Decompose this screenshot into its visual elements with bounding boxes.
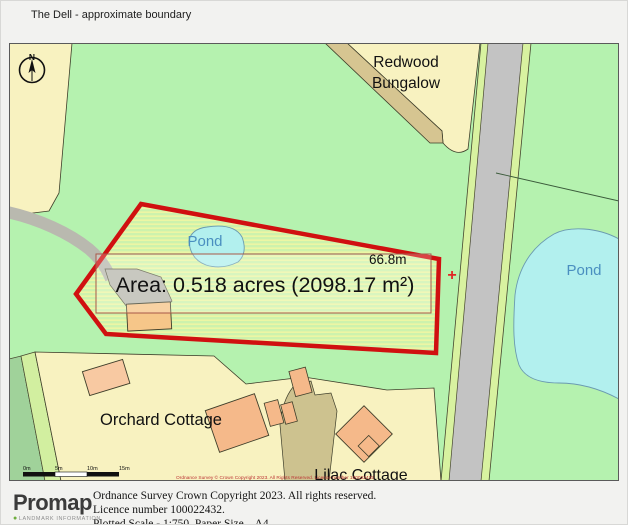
os-credit-text: Ordnance Survey © Crown Copyright 2023. … [176, 474, 374, 481]
promap-logo-subtext: ●LANDMARK INFORMATION [13, 515, 91, 522]
lilac-drive [280, 381, 337, 481]
map[interactable]: Area: 0.518 acres (2098.17 m²) 66.8m + R… [9, 43, 619, 481]
area-label: Area: 0.518 acres (2098.17 m²) [116, 273, 415, 297]
promap-logo: Promap ●LANDMARK INFORMATION [13, 492, 91, 522]
scale-seg-2 [55, 472, 87, 477]
scale-tick-0: 0m [23, 466, 31, 472]
label-orchard-cottage: Orchard Cottage [100, 411, 222, 429]
promap-logo-text: Promap [13, 492, 91, 514]
copyright-line-3: Plotted Scale - 1:750. Paper Size – A4 [93, 518, 376, 525]
copyright-line-2: Licence number 100022432. [93, 504, 376, 518]
scale-tick-15: 15m [119, 466, 130, 472]
promap-export-window: The Dell - approximate boundary [0, 0, 628, 525]
footer-copyright: Ordnance Survey Crown Copyright 2023. Al… [93, 490, 376, 525]
label-redwood-line1: Redwood [373, 54, 439, 71]
scale-seg-3 [87, 472, 119, 477]
landmark-dot-icon: ● [13, 515, 18, 522]
measurement-label: 66.8m [369, 252, 407, 267]
scale-tick-10: 10m [87, 466, 98, 472]
label-pond-small: Pond [187, 233, 222, 250]
label-pond-large: Pond [566, 262, 601, 279]
scale-tick-5: 5m [55, 466, 63, 472]
label-redwood-line2: Bungalow [372, 75, 441, 92]
scale-seg-1 [23, 472, 55, 477]
page-title: The Dell - approximate boundary [31, 9, 191, 21]
landmark-label: LANDMARK INFORMATION [19, 516, 101, 522]
copyright-line-1: Ordnance Survey Crown Copyright 2023. Al… [93, 490, 376, 504]
plus-marker-icon: + [447, 267, 456, 284]
